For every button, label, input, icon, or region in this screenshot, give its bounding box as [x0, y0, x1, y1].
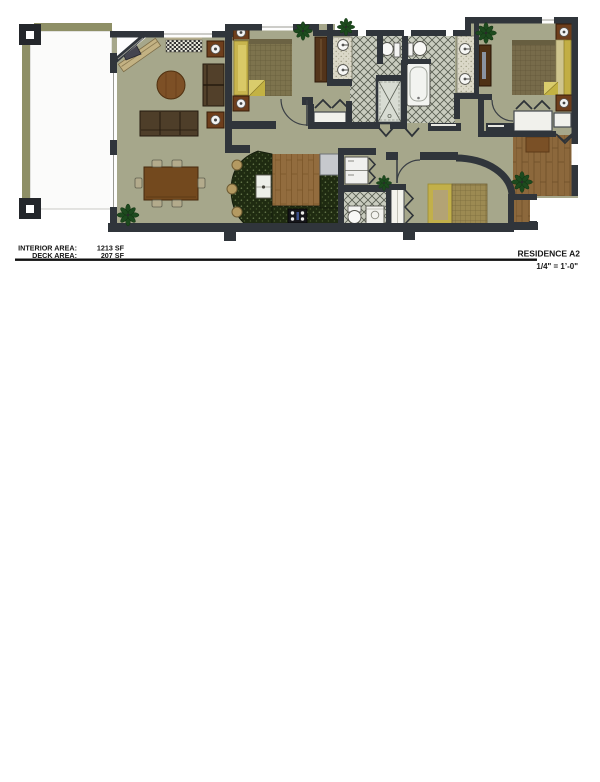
svg-text:1/4" = 1’-0": 1/4" = 1’-0" — [536, 262, 578, 271]
svg-text:RESIDENCE A2: RESIDENCE A2 — [517, 249, 580, 259]
